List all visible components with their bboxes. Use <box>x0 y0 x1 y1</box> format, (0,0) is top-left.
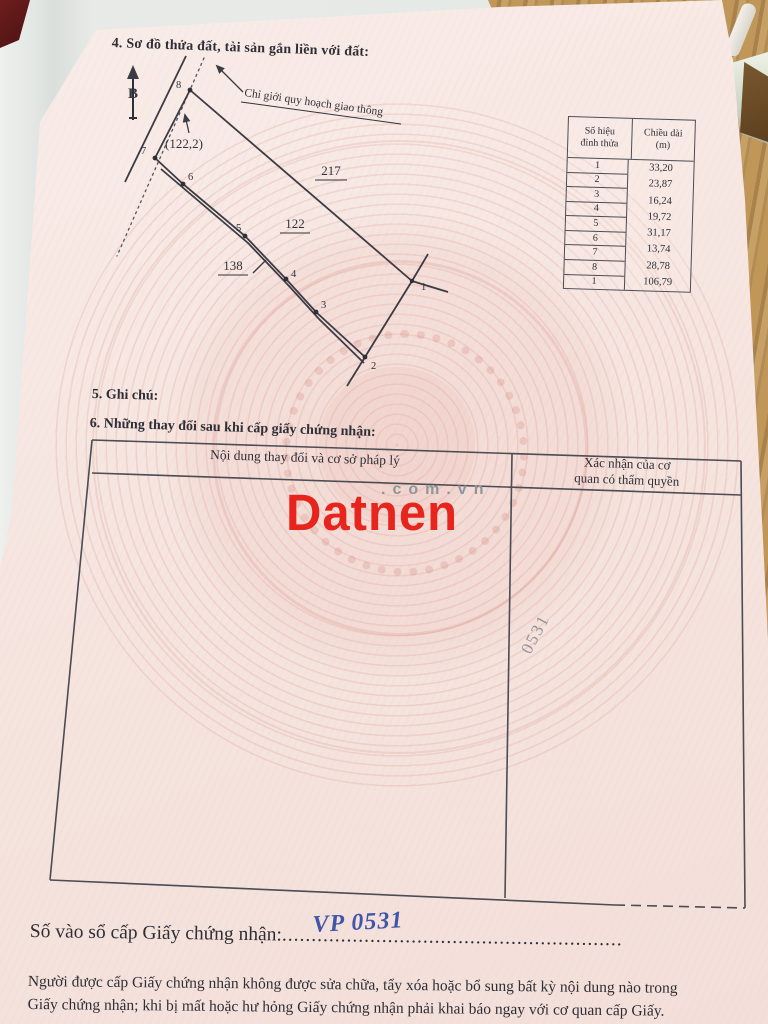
length-table-body: 123456781 33,2023,8716,2419,7231,1713,74… <box>564 158 694 292</box>
length-value: 106,79 <box>625 276 690 290</box>
parcel-numbers: 217 122 138 <box>218 163 347 275</box>
svg-text:217: 217 <box>321 163 341 178</box>
svg-text:4: 4 <box>291 269 297 280</box>
length-value: 31,17 <box>626 227 691 241</box>
vertex-dots <box>153 88 415 360</box>
svg-text:8: 8 <box>176 80 181 91</box>
svg-text:B: B <box>128 86 138 102</box>
length-value: 28,78 <box>625 259 690 273</box>
length-table-header: Số hiệu đỉnh thửa Chiều dài (m) <box>568 117 695 162</box>
dark-object <box>740 62 768 142</box>
vertex-number-cell: 1 <box>564 273 624 289</box>
north-arrow-icon: B <box>128 68 138 120</box>
svg-text:6: 6 <box>188 172 193 183</box>
section5-title: 5. Ghi chú: <box>92 387 159 405</box>
svg-text:Chỉ giới quy hoạch giao thông: Chỉ giới quy hoạch giao thông <box>244 87 384 118</box>
footer-notice: Người được cấp Giấy chứng nhận không đượ… <box>28 971 758 1024</box>
planning-line-label: Chỉ giới quy hoạch giao thông <box>217 66 401 124</box>
svg-text:5: 5 <box>236 223 241 234</box>
length-col: 33,2023,8716,2419,7231,1713,7428,78106,7… <box>625 160 694 292</box>
watermark-brand-logo: Datnen <box>286 484 458 542</box>
photo-canvas: 4. Sơ đồ thửa đất, tài sản gắn liền với … <box>0 0 768 1024</box>
length-value: 33,20 <box>628 162 693 176</box>
svg-text:2: 2 <box>371 361 376 372</box>
length-value: 13,74 <box>626 243 691 257</box>
length-header: Chiều dài (m) <box>631 119 695 161</box>
svg-text:122: 122 <box>285 216 305 231</box>
length-value: 16,24 <box>627 194 692 208</box>
svg-text:1: 1 <box>421 282 426 293</box>
svg-text:3: 3 <box>321 300 326 311</box>
length-value: 23,87 <box>628 178 693 192</box>
register-label: Số vào sổ cấp Giấy chứng nhận: <box>30 921 282 946</box>
vertex-length-table: Số hiệu đỉnh thửa Chiều dài (m) 12345678… <box>563 116 696 293</box>
vertex-col: 123456781 <box>564 158 629 290</box>
svg-text:138: 138 <box>223 258 243 273</box>
register-number-handwritten: VP 0531 <box>312 907 404 939</box>
certificate-page: 4. Sơ đồ thửa đất, tài sản gắn liền với … <box>0 0 768 1024</box>
svg-text:7: 7 <box>141 146 146 157</box>
svg-text:(122,2): (122,2) <box>165 136 203 151</box>
length-value: 19,72 <box>627 211 692 225</box>
plot-boundary <box>155 90 448 386</box>
maroon-corner-object <box>0 0 34 52</box>
inner-area-note: (122,2) <box>165 115 203 151</box>
vertex-id-header: Số hiệu đỉnh thửa <box>568 117 633 159</box>
